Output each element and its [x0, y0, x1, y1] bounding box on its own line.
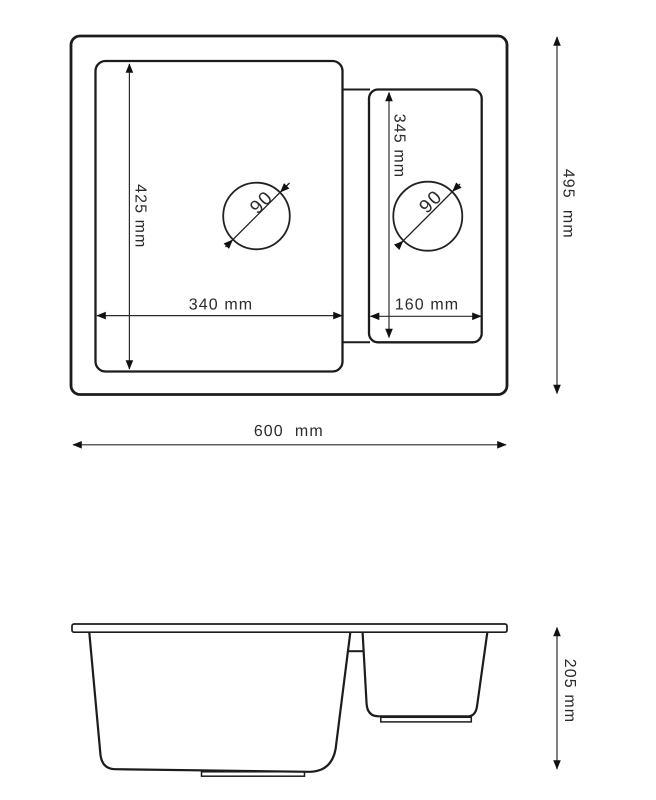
- svg-text:340 mm: 340 mm: [189, 297, 253, 314]
- svg-text:345 mm: 345 mm: [390, 114, 407, 178]
- svg-text:205 mm: 205 mm: [561, 659, 578, 723]
- svg-text:495 mm: 495 mm: [559, 169, 576, 239]
- svg-text:160 mm: 160 mm: [395, 297, 459, 314]
- svg-text:600 mm: 600 mm: [254, 423, 324, 440]
- svg-text:425 mm: 425 mm: [131, 184, 148, 248]
